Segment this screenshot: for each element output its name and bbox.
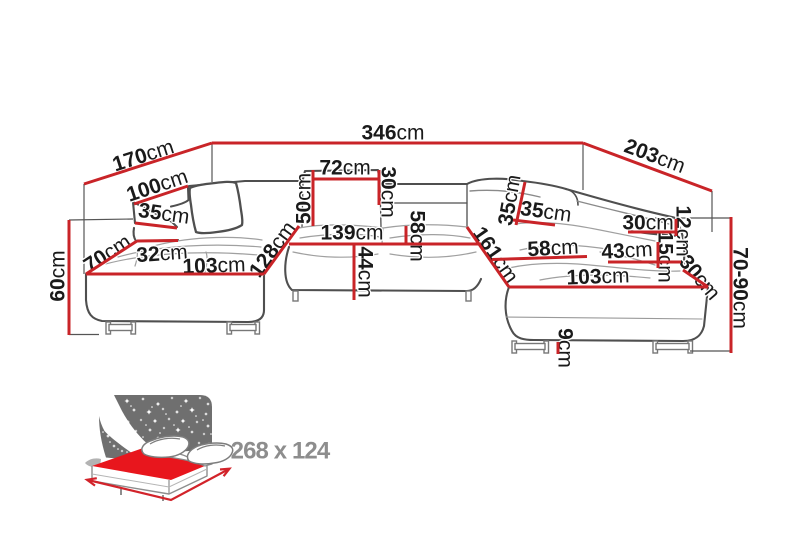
svg-text:60cm: 60cm	[46, 250, 69, 301]
svg-text:43cm: 43cm	[601, 238, 653, 264]
svg-text:268 x 124: 268 x 124	[231, 438, 331, 465]
svg-text:32cm: 32cm	[136, 241, 189, 268]
svg-text:72cm: 72cm	[319, 156, 370, 179]
svg-text:139cm: 139cm	[320, 221, 383, 244]
svg-text:44cm: 44cm	[354, 246, 377, 297]
svg-text:346cm: 346cm	[361, 121, 424, 144]
svg-text:58cm: 58cm	[406, 210, 429, 261]
